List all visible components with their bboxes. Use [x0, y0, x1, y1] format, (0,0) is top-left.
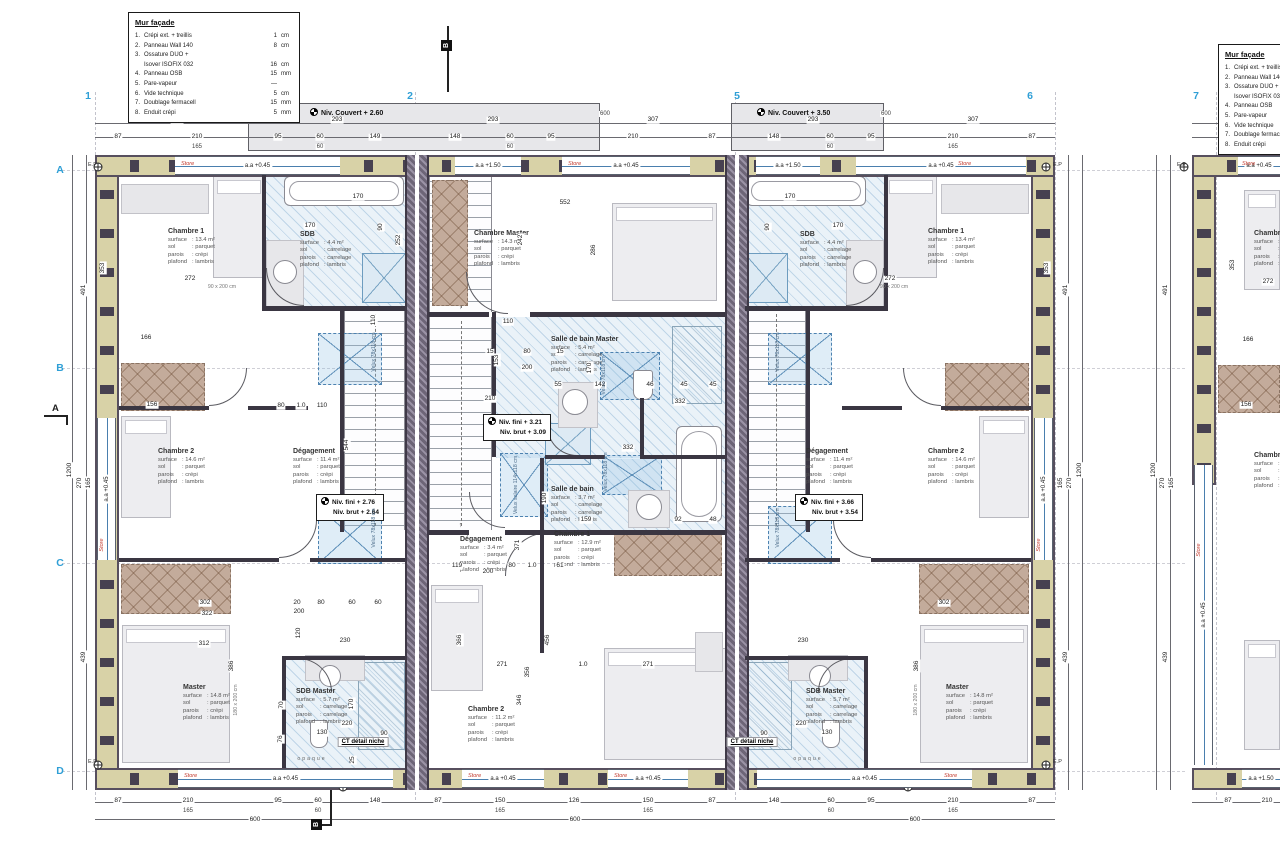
legend-mur-facade: Mur façade 1.Crépi ext. + treillis1cm2.P…: [128, 12, 300, 123]
dimension-label: 1200: [1077, 462, 1084, 478]
velux-label: Velux 78x118 cm: [775, 332, 781, 371]
dimension-label: 45: [708, 382, 717, 389]
dimension-label: 60: [314, 808, 323, 814]
room-name: Master: [183, 684, 230, 691]
bathtub-basin: [681, 431, 717, 517]
partition-wall: [941, 406, 1031, 410]
ep-label: E.P: [1053, 759, 1062, 765]
legend-item: 8.Enduit crépi5mm: [135, 109, 293, 119]
dimension-label: 386: [914, 660, 921, 673]
dimension-label: 95: [273, 134, 282, 141]
window-sill-label: a.a +0.45: [271, 776, 300, 782]
room-label-chambre2-left: Chambre 2surface: 14.6 m²sol: parquetpar…: [158, 448, 205, 487]
bed-size-label: 90 x 200 cm: [208, 284, 236, 290]
room-name: Chambre 1: [928, 228, 975, 235]
dimension-label: 87: [1027, 134, 1036, 141]
window: a.a +1.50: [756, 156, 820, 175]
dimension-label: 200: [482, 569, 495, 576]
dimension-label: 200: [521, 365, 534, 372]
dimension-label: 165: [947, 144, 959, 150]
crosshair-marker: [1042, 761, 1051, 770]
dimension-label: 95: [546, 134, 555, 141]
dimension-label: 110: [502, 319, 514, 326]
level-band: [248, 103, 600, 151]
dimension-label: 80: [276, 403, 285, 410]
dimension-line: [1068, 155, 1069, 790]
room-name: Dégagement: [806, 448, 853, 455]
legend-item: 4.Panneau OSB15mm: [135, 70, 293, 80]
section-marker-A: A: [52, 403, 59, 414]
dimension-label: 170: [832, 223, 845, 230]
velux-label: Velux 78x118 cm: [775, 508, 781, 547]
dimension-label: 293: [807, 117, 820, 124]
dimension-label: 293: [331, 117, 344, 124]
partition-wall: [262, 170, 266, 310]
dimension-label: 60: [826, 798, 835, 805]
dimension-label: 165: [494, 808, 506, 814]
dimension-label: 87: [113, 134, 122, 141]
dimension-label: 200: [293, 609, 306, 616]
dimension-label: 60: [313, 798, 322, 805]
dimension-label: 165: [947, 808, 959, 814]
grid-bubble-row-C: C: [56, 557, 64, 569]
store-label: Store: [468, 773, 481, 779]
dimension-label: 272: [884, 276, 897, 283]
dimension-label: 346: [517, 694, 524, 707]
legend-item: 7.Doublage fermacell15mm: [1225, 131, 1280, 141]
stair-walkline: [461, 321, 462, 526]
partition-wall: [282, 660, 286, 768]
pillow: [1248, 194, 1276, 208]
pillow: [889, 180, 933, 194]
window: a.a +0.45: [757, 769, 972, 788]
dimension-label: 491: [1163, 284, 1170, 297]
partition-wall: [282, 656, 405, 660]
partition-wall: [262, 306, 405, 311]
velux-label: Velux 78x118 cm: [371, 508, 377, 547]
dimension-label: 87: [707, 134, 716, 141]
partition-wall: [864, 660, 868, 768]
dimension-label: 15: [485, 349, 494, 356]
dimension-label: 60: [826, 144, 835, 150]
legend-item: 2.Panneau Wall 1408cm: [135, 42, 293, 52]
level-icon: [321, 497, 329, 505]
dimension-label: 55: [553, 382, 562, 389]
bed: [1244, 640, 1280, 750]
legend-title: Mur façade: [1225, 50, 1280, 59]
window-sill-label: a.a +0.45: [1201, 600, 1207, 629]
exterior-wall: [1192, 155, 1216, 485]
bathtub: [284, 176, 404, 206]
dimension-label: 170: [304, 223, 317, 230]
dimension-label: 210: [1261, 798, 1274, 805]
dimension-label: 60: [825, 134, 834, 141]
pillow: [1248, 644, 1276, 658]
level-icon: [800, 497, 808, 505]
section-marker-B: B: [441, 40, 452, 51]
ep-label: E.P: [1177, 162, 1186, 168]
dimension-label: 252: [396, 234, 403, 247]
dimension-label: 110: [316, 403, 328, 410]
dimension-label: 90: [378, 222, 385, 231]
dimension-label: 150: [642, 798, 655, 805]
dimension-label: 80: [316, 600, 325, 607]
partition-wall: [429, 530, 469, 535]
bed: [213, 176, 265, 278]
dimension-label: 87: [1223, 798, 1232, 805]
dimension-label: 332: [674, 399, 687, 406]
grid-bubble-row-B: B: [56, 362, 64, 374]
dimension-label: 1.0: [577, 662, 588, 669]
dimension-label: 353: [1044, 262, 1051, 275]
window: a.a +0.45: [856, 156, 1026, 175]
legend-mur-facade-right: Mur façade 1.Crépi ext. + treillis1cm2.P…: [1218, 44, 1280, 155]
dimension-label: 148: [369, 798, 382, 805]
legend-items: 1.Crépi ext. + treillis1cm2.Panneau Wall…: [1225, 64, 1280, 150]
partition-wall: [745, 656, 868, 660]
dimension-label: 220: [795, 721, 808, 728]
room-label-sdb-left: SDBsurface: 4.4 m²sol: carrelageparois: …: [300, 231, 351, 270]
room-label-degagement-left: Dégagementsurface: 11.4 m²sol: parquetpa…: [293, 448, 340, 487]
dimension-label: 166: [1242, 337, 1255, 344]
store-label: Store: [1036, 538, 1042, 551]
dimension-label: 386: [229, 660, 236, 673]
legend-item: 7.Doublage fermacell15mm: [135, 99, 293, 109]
dimension-label: 148: [449, 134, 462, 141]
furniture: [695, 632, 723, 672]
wardrobe-hatch: [121, 363, 205, 411]
dimension-label: 70: [279, 700, 286, 709]
dimension-label: 353: [100, 262, 107, 275]
dimension-label: 371: [515, 539, 522, 552]
dimension-label: 600: [909, 817, 922, 824]
wardrobe-hatch: [121, 564, 231, 614]
bed: [979, 416, 1029, 518]
partition-wall: [505, 530, 725, 535]
dimension-label: 302: [938, 600, 951, 607]
dimension-label: 60: [347, 600, 356, 607]
dimension-line: [95, 137, 1055, 138]
section-line: [447, 26, 449, 92]
room-name: SDB Master: [296, 688, 347, 695]
dimension-label: 272: [1262, 279, 1275, 286]
room-label-chambre2-center: Chambre 2surface: 11.2 m²sol: parquetpar…: [468, 706, 515, 745]
dimension-label: 272: [184, 276, 197, 283]
partition-wall: [119, 406, 209, 410]
partition-wall: [545, 455, 605, 459]
dimension-label: 600: [249, 817, 262, 824]
furniture: [121, 184, 209, 214]
ep-label: E.P: [1053, 162, 1062, 168]
dimension-label: 170: [784, 194, 797, 201]
window: a.a +0.45: [1194, 465, 1213, 765]
dimension-label: 60: [505, 134, 514, 141]
dimension-label: 60: [315, 134, 324, 141]
window-sill-label: a.a +0.45: [488, 776, 517, 782]
wardrobe-hatch: [945, 363, 1029, 411]
dimension-label: 1200: [67, 462, 74, 478]
dimension-label: 80: [507, 563, 516, 570]
dimension-label: 130: [316, 730, 329, 737]
section-line: [322, 824, 332, 826]
dimension-label: 92: [673, 517, 682, 524]
partition-wall: [745, 558, 840, 562]
dimension-label: 165: [191, 144, 203, 150]
dimension-label: 61: [555, 563, 564, 570]
dimension-label: 60: [827, 808, 836, 814]
dimension-label: 1.0: [295, 403, 306, 410]
room-label-chambre2-partial: Chambre 2surface: 14.6 m²sol: parquetpar…: [1254, 452, 1280, 491]
dimension-label: 544: [344, 439, 351, 452]
window-sill-label: a.a +1.50: [773, 163, 802, 169]
dimension-label: 25: [350, 755, 357, 764]
dimension-label: 600: [599, 111, 611, 117]
dimension-label: 307: [967, 117, 980, 124]
dimension-label: 271: [496, 662, 509, 669]
wardrobe-hatch: [614, 532, 722, 576]
level-icon: [488, 417, 496, 425]
window-sill-label: a.a +0.45: [104, 474, 110, 503]
dimension-line: [1170, 155, 1171, 790]
dimension-label: 95: [273, 798, 282, 805]
crosshair-marker: [1042, 163, 1051, 172]
dimension-label: 210: [627, 134, 640, 141]
store-label: Store: [181, 161, 194, 167]
velux-skylight: [602, 455, 662, 495]
section-line: [66, 415, 68, 425]
dimension-label: 130: [821, 730, 834, 737]
dimension-label: 120: [296, 627, 303, 640]
partition-wall: [530, 312, 725, 317]
dimension-label: 332: [622, 445, 635, 452]
dimension-label: 87: [113, 798, 122, 805]
dimension-label: 148: [768, 798, 781, 805]
level-annotation-box: Niv. fini + 3.21Niv. brut + 3.09: [483, 414, 551, 441]
party-wall: [405, 155, 429, 790]
room-name: Chambre 2: [928, 448, 975, 455]
bed-size-label: 180 x 200 cm: [233, 684, 239, 715]
grid-line: [1055, 92, 1056, 800]
velux-label: Velux 78x118 cm: [371, 332, 377, 371]
dimension-label: 95: [866, 798, 875, 805]
room-label-master-left: Mastersurface: 14.8 m²sol: parquetparois…: [183, 684, 230, 723]
dimension-label: 90: [765, 222, 772, 231]
room-name: Chambre 2: [1254, 452, 1280, 459]
pillow: [924, 629, 1024, 643]
dimension-label: 270: [1067, 477, 1074, 490]
dimension-label: 119: [451, 563, 463, 570]
sink: [562, 389, 588, 415]
room-name: Chambre 1: [168, 228, 215, 235]
room-name: Chambre 1: [1254, 230, 1280, 237]
legend-item: 1.Crépi ext. + treillis1cm: [135, 32, 293, 42]
window-sill-label: a.a +0.45: [633, 776, 662, 782]
dimension-label: 552: [559, 200, 572, 207]
room-label-chambre2-right: Chambre 2surface: 14.6 m²sol: parquetpar…: [928, 448, 975, 487]
dimension-label: 271: [642, 662, 655, 669]
partition-wall: [640, 455, 725, 459]
dimension-line: [86, 155, 87, 790]
room-label-chambre1-left: Chambre 1surface: 13.4 m²sol: parquetpar…: [168, 228, 215, 267]
dimension-label: 76: [278, 734, 285, 743]
legend-item: 5.Pare-vapeur—: [1225, 112, 1280, 122]
dimension-label: 307: [647, 117, 660, 124]
wall-studs: [1197, 160, 1211, 480]
party-wall: [725, 155, 749, 790]
room-name: Salle de bain Master: [551, 336, 618, 343]
opaque-label: opaque: [297, 756, 326, 762]
door-swing-arc: [833, 520, 871, 558]
dimension-label: 439: [81, 651, 88, 664]
dimension-label: 15: [555, 349, 564, 356]
dimension-label: 439: [1163, 651, 1170, 664]
room-label-sdb-master-right: SDB Mastersurface: 5.7 m²sol: carrelagep…: [806, 688, 857, 727]
window: a.a +0.45: [562, 156, 690, 175]
dimension-label: 293: [487, 117, 500, 124]
furniture: [941, 184, 1029, 214]
legend-item: 3.Ossature DUO +: [1225, 83, 1280, 93]
dimension-label: 153: [494, 354, 501, 367]
dimension-label: 439: [1063, 651, 1070, 664]
dimension-label: 20: [292, 600, 301, 607]
dimension-label: 210: [947, 134, 960, 141]
bathtub: [746, 176, 866, 206]
pillow: [217, 180, 261, 194]
shower: [362, 253, 406, 303]
grid-bubble-row-A: A: [56, 164, 64, 176]
dimension-label: 170: [352, 194, 365, 201]
legend-title: Mur façade: [135, 18, 293, 27]
legend-item: 4.Panneau OSB15mm: [1225, 102, 1280, 112]
wardrobe-hatch: [432, 180, 468, 306]
partition-wall: [119, 558, 279, 562]
legend-items: 1.Crépi ext. + treillis1cm2.Panneau Wall…: [135, 32, 293, 118]
partition-wall: [310, 558, 405, 562]
room-name: Chambre 2: [468, 706, 515, 713]
window-sill-label: a.a +1.50: [473, 163, 502, 169]
window-sill-label: a.a +0.45: [926, 163, 955, 169]
stair-arrow-icon: ↑: [459, 522, 463, 529]
legend-item: 8.Enduit crépi5mm: [1225, 141, 1280, 151]
dimension-label: 456: [545, 634, 552, 647]
dimension-label: 149: [369, 134, 382, 141]
door-swing-arc: [903, 368, 941, 406]
shower-glass: [672, 326, 722, 404]
room-name: Dégagement: [460, 536, 507, 543]
store-label: Store: [958, 161, 971, 167]
legend-item: 5.Pare-vapeur—: [135, 80, 293, 90]
room-name: Master: [946, 684, 993, 691]
legend-item: 6.Vide technique5cm: [1225, 122, 1280, 132]
pillow: [616, 207, 713, 221]
room-name: Chambre 1: [554, 531, 601, 538]
store-label: Store: [1242, 161, 1255, 167]
dimension-label: 165: [86, 477, 93, 490]
dimension-label: 46: [645, 382, 654, 389]
bed-size-label: 180 x 200 cm: [913, 684, 919, 715]
dimension-label: 95: [866, 134, 875, 141]
floor-plan-drawing: Mur façade 1.Crépi ext. + treillis1cm2.P…: [0, 0, 1280, 853]
store-label: Store: [184, 773, 197, 779]
dimension-label: 322: [201, 611, 214, 618]
legend-item: 2.Panneau Wall 1408cm: [1225, 74, 1280, 84]
velux-label: Velux 78x118 cm: [601, 355, 607, 394]
dimension-label: 60: [373, 600, 382, 607]
store-label: Store: [1196, 543, 1202, 556]
pillow: [435, 589, 479, 603]
room-label-sdb-right: SDBsurface: 4.4 m²sol: carrelageparois: …: [800, 231, 851, 270]
velux-label: Velux solaire 114x118 cm: [513, 456, 519, 514]
room-name: SDB: [300, 231, 351, 238]
dimension-label: 600: [880, 111, 892, 117]
dimension-label: 170: [587, 362, 594, 375]
dimension-label: 286: [591, 244, 598, 257]
window-sill-label: a.a +0.45: [243, 163, 272, 169]
dimension-label: 80: [522, 349, 531, 356]
window-sill-label: a.a +0.45: [1041, 474, 1047, 503]
level-band-label: Niv. Couvert + 2.60: [310, 108, 383, 117]
dimension-label: 230: [797, 638, 810, 645]
dimension-label: 165: [1169, 477, 1176, 490]
ep-label: E.P: [88, 162, 97, 168]
dimension-label: 242: [518, 234, 525, 247]
dimension-label: 270: [1160, 477, 1167, 490]
store-label: Store: [99, 538, 105, 551]
velux-label: Velux 78x118 cm: [603, 452, 609, 491]
room-label-sdb-center: Salle de bainsurface: 3.7 m²sol: carrela…: [551, 486, 602, 525]
dimension-label: 210: [484, 396, 497, 403]
grid-bubble-col-2: 2: [407, 90, 413, 102]
dimension-label: 45: [679, 382, 688, 389]
partition-wall: [429, 312, 489, 317]
dimension-label: 353: [1230, 259, 1237, 272]
legend-item-line2: Isover ISOFIX 03216cm: [135, 61, 293, 71]
pillow: [126, 629, 226, 643]
dimension-label: 491: [81, 284, 88, 297]
bed-size-label: 90 x 200 cm: [880, 284, 908, 290]
dimension-label: 1.0: [526, 563, 537, 570]
level-icon: [757, 108, 765, 116]
window-sill-label: a.a +1.50: [1246, 776, 1275, 782]
dimension-label: 110: [371, 314, 378, 326]
window: a.a +1.50: [455, 156, 521, 175]
partition-wall: [842, 406, 902, 410]
dimension-label: 366: [457, 634, 464, 647]
window-sill-label: a.a +0.45: [850, 776, 879, 782]
window-sill-label: a.a +0.45: [611, 163, 640, 169]
room-name: Chambre 2: [158, 448, 205, 455]
partition-wall: [640, 398, 644, 458]
room-name: SDB: [800, 231, 851, 238]
section-line: [330, 790, 332, 824]
dimension-label: 220: [341, 721, 354, 728]
partition-wall: [871, 558, 1031, 562]
window: a.a +0.45: [178, 769, 393, 788]
pillow: [983, 420, 1025, 434]
dimension-label: 148: [768, 134, 781, 141]
dimension-label: 210: [182, 798, 195, 805]
grid-bubble-col-5: 5: [734, 90, 740, 102]
legend-item: 3.Ossature DUO +: [135, 51, 293, 61]
level-icon: [310, 108, 318, 116]
room-label-sdb-master-center: Salle de bain Mastersurface: 5.4 m²sol: …: [551, 336, 618, 375]
dimension-label: 87: [707, 798, 716, 805]
dimension-label: 210: [947, 798, 960, 805]
dimension-label: 356: [525, 666, 532, 679]
door-swing-arc: [279, 520, 317, 558]
grid-bubble-col-7: 7: [1193, 90, 1199, 102]
door-swing-arc: [209, 368, 247, 406]
